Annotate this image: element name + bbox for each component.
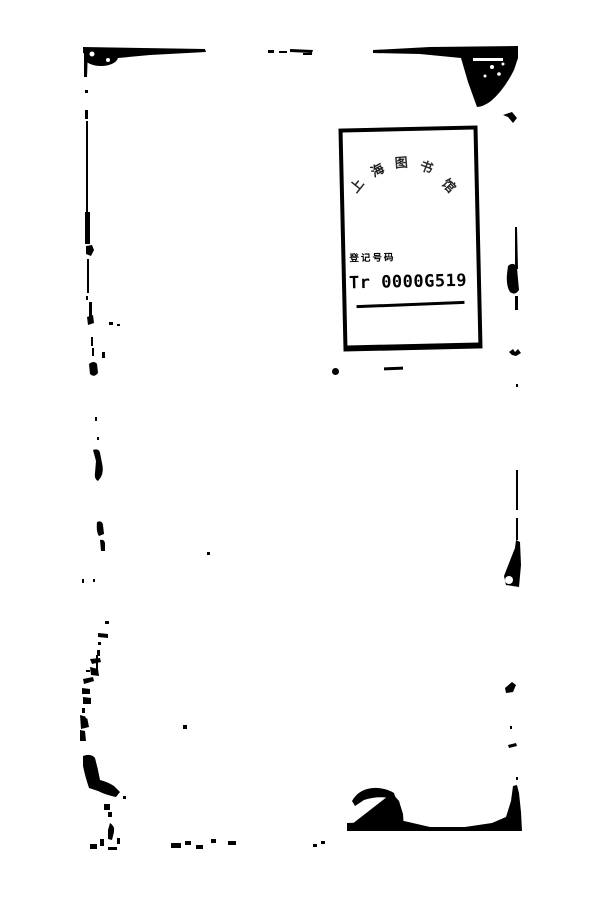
bottom-specks-artifact	[171, 839, 325, 849]
accession-number: Tr 0000G519	[349, 271, 468, 294]
stamp-arc-char-1: 上	[347, 175, 367, 196]
stamp-arc-char-4: 书	[417, 158, 437, 176]
ink-dot	[332, 368, 339, 375]
top-edge-left-artifact	[83, 47, 206, 77]
stamp-arc-char-5: 馆	[439, 175, 459, 196]
stamp-arc-char-3: 图	[393, 156, 410, 170]
interior-speck	[207, 552, 210, 555]
bottom-swoosh-artifact	[347, 785, 522, 831]
left-edge-artifact	[82, 90, 120, 583]
top-edge-middle-artifact	[268, 49, 313, 55]
accession-underline	[356, 301, 464, 308]
left-lower-artifact	[80, 621, 187, 741]
bottom-left-artifact	[83, 755, 126, 850]
scanned-page: 上 海 图 书 馆 登记号码 Tr 0000G519	[0, 0, 600, 899]
hook-mark	[503, 112, 517, 123]
accession-label: 登记号码	[349, 253, 395, 264]
top-right-wedge-artifact	[373, 46, 518, 123]
library-stamp-box: 上 海 图 书 馆 登记号码 Tr 0000G519	[338, 125, 482, 351]
stamp-arc-char-2: 海	[367, 161, 387, 180]
right-edge-artifact	[504, 227, 521, 780]
scan-artifacts	[0, 0, 600, 899]
